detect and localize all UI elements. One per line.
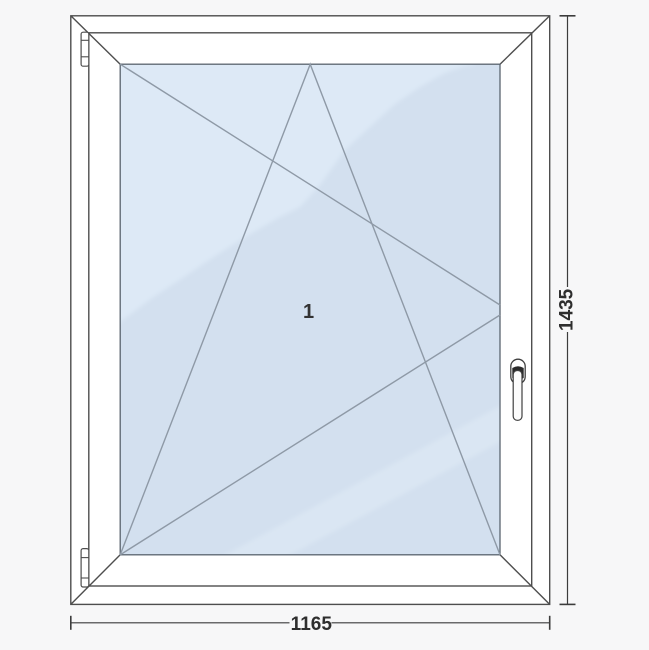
- svg-text:1: 1: [303, 301, 314, 323]
- svg-text:1165: 1165: [291, 614, 333, 635]
- svg-text:1435: 1435: [557, 288, 578, 331]
